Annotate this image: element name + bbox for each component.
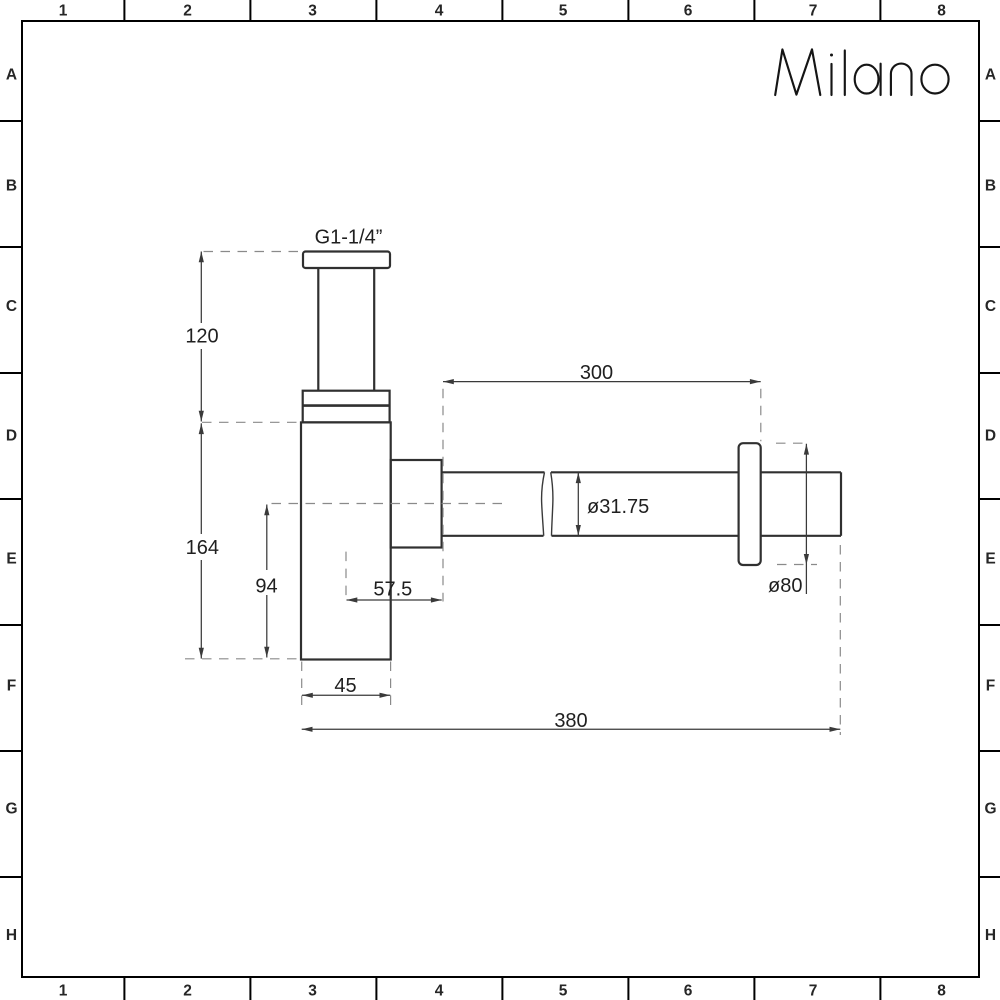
svg-text:7: 7: [809, 3, 818, 20]
svg-text:4: 4: [435, 983, 444, 1000]
svg-text:57.5: 57.5: [373, 579, 412, 601]
svg-text:E: E: [985, 551, 995, 568]
svg-text:300: 300: [580, 362, 613, 384]
svg-text:6: 6: [684, 983, 693, 1000]
svg-text:B: B: [985, 178, 996, 195]
svg-text:8: 8: [937, 983, 946, 1000]
svg-text:ø80: ø80: [768, 575, 802, 597]
svg-text:7: 7: [809, 983, 818, 1000]
svg-text:B: B: [6, 178, 17, 195]
svg-text:1: 1: [59, 3, 68, 20]
svg-text:94: 94: [255, 576, 277, 598]
svg-text:164: 164: [186, 537, 219, 559]
svg-text:H: H: [6, 927, 17, 944]
svg-text:1: 1: [59, 983, 68, 1000]
svg-text:D: D: [6, 428, 17, 445]
svg-text:6: 6: [684, 3, 693, 20]
svg-text:ø31.75: ø31.75: [587, 496, 649, 518]
svg-text:G: G: [984, 801, 996, 818]
svg-text:F: F: [986, 678, 995, 695]
svg-text:A: A: [985, 67, 996, 84]
svg-text:E: E: [6, 551, 16, 568]
svg-text:C: C: [985, 298, 996, 315]
svg-text:120: 120: [185, 326, 218, 348]
svg-text:5: 5: [559, 3, 568, 20]
svg-text:45: 45: [334, 675, 356, 697]
svg-text:D: D: [985, 428, 996, 445]
svg-text:5: 5: [559, 983, 568, 1000]
svg-text:8: 8: [937, 3, 946, 20]
svg-text:G1-1/4”: G1-1/4”: [315, 227, 383, 249]
svg-text:4: 4: [435, 3, 444, 20]
svg-text:2: 2: [183, 983, 192, 1000]
svg-text:C: C: [6, 298, 17, 315]
svg-text:2: 2: [183, 3, 192, 20]
svg-text:G: G: [5, 801, 17, 818]
svg-text:3: 3: [308, 3, 317, 20]
svg-text:F: F: [7, 678, 16, 695]
svg-text:3: 3: [308, 983, 317, 1000]
svg-text:380: 380: [554, 710, 587, 732]
svg-text:A: A: [6, 67, 17, 84]
svg-text:H: H: [985, 927, 996, 944]
